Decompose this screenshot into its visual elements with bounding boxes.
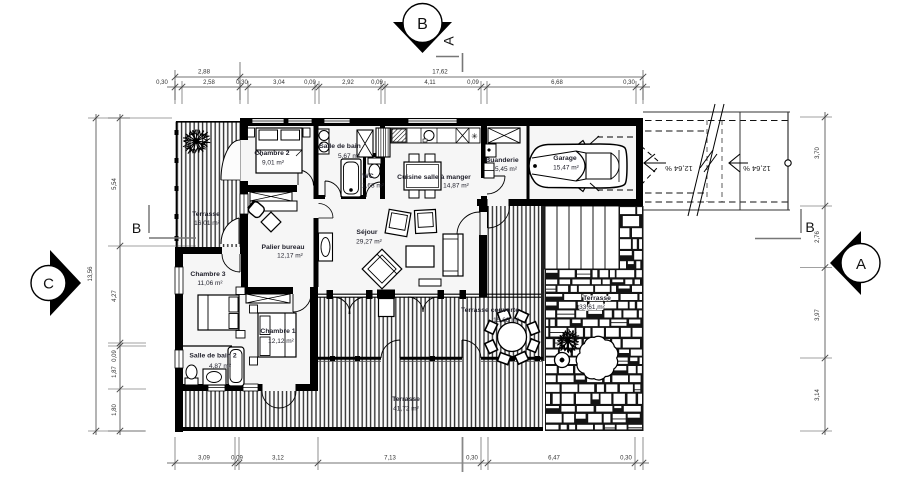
svg-text:5,45 m²: 5,45 m² [495, 166, 518, 173]
svg-text:0,30: 0,30 [236, 80, 248, 86]
svg-text:4,87 m²: 4,87 m² [209, 363, 232, 370]
svg-text:3,04: 3,04 [273, 80, 285, 86]
svg-text:Palier bureau: Palier bureau [261, 244, 304, 251]
svg-text:Salle de bain: Salle de bain [319, 143, 361, 150]
svg-text:4,27: 4,27 [112, 290, 118, 302]
svg-text:0,30: 0,30 [623, 80, 635, 86]
svg-text:0,09: 0,09 [112, 350, 118, 362]
svg-text:41,72 m²: 41,72 m² [393, 406, 419, 413]
svg-text:3,70: 3,70 [815, 147, 821, 159]
svg-text:0,09: 0,09 [304, 80, 316, 86]
svg-text:Buanderie: Buanderie [485, 157, 518, 164]
svg-text:15,68 m²: 15,68 m² [493, 317, 519, 324]
svg-text:6,68: 6,68 [551, 80, 563, 86]
svg-text:1,68 m²: 1,68 m² [362, 183, 385, 190]
svg-text:B: B [132, 220, 141, 236]
svg-text:3,97: 3,97 [815, 309, 821, 321]
svg-text:0,30: 0,30 [156, 80, 168, 86]
svg-text:Chambre 1: Chambre 1 [260, 328, 295, 335]
svg-text:0,09: 0,09 [467, 80, 479, 86]
svg-text:Garage: Garage [553, 155, 577, 162]
svg-text:3,12: 3,12 [272, 456, 284, 462]
svg-text:12,64 %: 12,64 % [665, 164, 693, 173]
svg-text:✳: ✳ [471, 132, 478, 141]
svg-text:0,30: 0,30 [620, 456, 632, 462]
svg-text:1,87: 1,87 [112, 366, 118, 378]
svg-text:33,61 m²: 33,61 m² [579, 304, 605, 311]
svg-text:12,17 m²: 12,17 m² [277, 253, 303, 260]
svg-text:0,09: 0,09 [231, 456, 243, 462]
svg-text:Séjour: Séjour [356, 229, 378, 236]
svg-text:7,13: 7,13 [384, 456, 396, 462]
svg-text:0,30: 0,30 [466, 456, 478, 462]
svg-text:17,62: 17,62 [432, 69, 448, 76]
svg-text:4,11: 4,11 [424, 80, 436, 86]
svg-text:C: C [43, 276, 54, 293]
svg-text:B: B [805, 219, 814, 235]
svg-text:A: A [856, 256, 866, 273]
svg-text:14,87 m²: 14,87 m² [443, 183, 469, 190]
svg-text:B: B [417, 16, 428, 33]
svg-text:5,67 m²: 5,67 m² [338, 153, 361, 160]
svg-text:Terrasse: Terrasse [392, 396, 420, 403]
svg-text:Salle de bain 2: Salle de bain 2 [189, 353, 236, 360]
svg-text:1,80: 1,80 [112, 404, 118, 416]
svg-text:Cuisine salle à manger: Cuisine salle à manger [397, 174, 471, 181]
svg-text:13,56: 13,56 [88, 266, 94, 282]
svg-text:12,12 m²: 12,12 m² [268, 338, 294, 345]
svg-text:WC: WC [362, 173, 373, 180]
svg-text:0,09: 0,09 [371, 80, 383, 86]
svg-text:Chambre 3: Chambre 3 [190, 271, 225, 278]
svg-text:6,47: 6,47 [548, 456, 560, 462]
svg-text:Terrasse couverte: Terrasse couverte [461, 307, 519, 314]
svg-text:2,92: 2,92 [342, 80, 354, 86]
svg-text:3,14: 3,14 [815, 389, 821, 401]
svg-text:29,27 m²: 29,27 m² [356, 239, 382, 246]
svg-text:5,54: 5,54 [112, 178, 118, 190]
svg-text:16,01 m²: 16,01 m² [194, 220, 220, 227]
svg-text:Chambre 2: Chambre 2 [254, 150, 289, 157]
svg-text:2,58: 2,58 [203, 80, 215, 86]
svg-text:12,64 %: 12,64 % [743, 164, 771, 173]
svg-text:A: A [441, 36, 457, 46]
svg-text:9,01 m²: 9,01 m² [262, 160, 285, 167]
svg-text:Terrasse: Terrasse [192, 211, 220, 218]
svg-text:Terrasse: Terrasse [583, 295, 611, 302]
svg-text:2,88: 2,88 [198, 69, 211, 76]
svg-text:11,06 m²: 11,06 m² [197, 280, 223, 287]
svg-text:3,09: 3,09 [198, 456, 210, 462]
svg-text:15,47 m²: 15,47 m² [553, 165, 579, 172]
svg-text:2,76: 2,76 [815, 231, 821, 243]
